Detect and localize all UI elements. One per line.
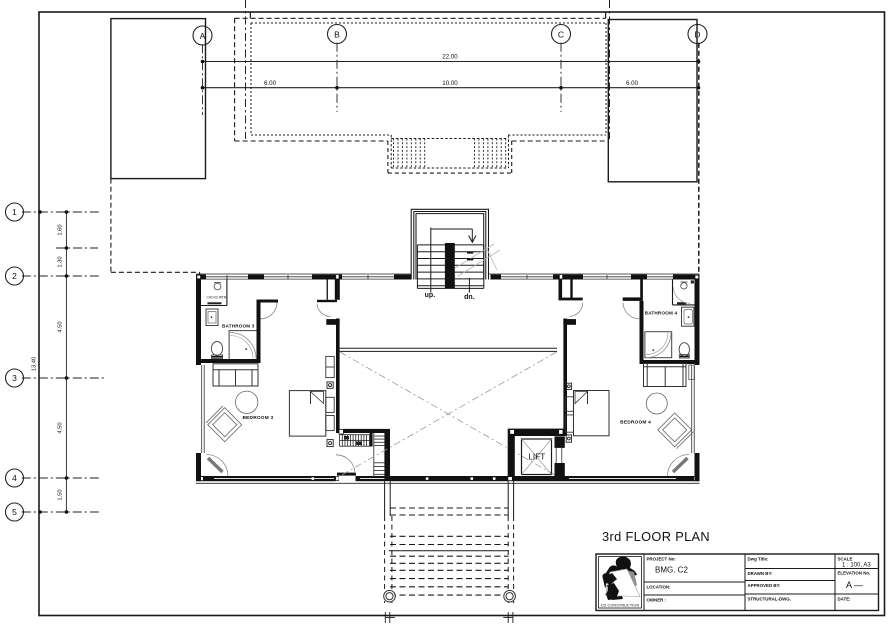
svg-text:6.00: 6.00 bbox=[264, 80, 277, 87]
svg-text:BATHROOM 4: BATHROOM 4 bbox=[645, 310, 678, 315]
svg-text:LIFT: LIFT bbox=[528, 453, 545, 462]
svg-text:A —: A — bbox=[846, 580, 863, 590]
svg-text:BATHROOM 3: BATHROOM 3 bbox=[222, 323, 255, 328]
svg-text:1: 1 bbox=[12, 207, 17, 217]
svg-text:ELEVATION No.: ELEVATION No. bbox=[838, 571, 871, 576]
svg-text:STRUCTURAL-DWG.: STRUCTURAL-DWG. bbox=[748, 597, 791, 602]
svg-text:1.60: 1.60 bbox=[58, 224, 64, 235]
svg-text:3rd FLOOR PLAN: 3rd FLOOR PLAN bbox=[602, 529, 710, 544]
svg-text:BMG. C2: BMG. C2 bbox=[655, 566, 688, 575]
svg-text:1 : 100, A3: 1 : 100, A3 bbox=[842, 563, 871, 569]
svg-text:1.30: 1.30 bbox=[58, 256, 64, 267]
svg-text:CHO.02 WTR: CHO.02 WTR bbox=[207, 296, 227, 300]
svg-text:1.50: 1.50 bbox=[58, 489, 64, 500]
svg-text:APPROVED BY:: APPROVED BY: bbox=[748, 583, 782, 588]
svg-text:3: 3 bbox=[12, 373, 17, 383]
svg-text:LOCATION:: LOCATION: bbox=[647, 585, 672, 590]
svg-text:PROJECT No:: PROJECT No: bbox=[647, 557, 677, 562]
svg-text:Dwg Title:: Dwg Title: bbox=[748, 557, 769, 562]
svg-text:4: 4 bbox=[12, 473, 17, 483]
svg-text:CD CONSTRUCTION: CD CONSTRUCTION bbox=[601, 604, 640, 608]
svg-text:13.40: 13.40 bbox=[32, 357, 38, 372]
svg-text:B: B bbox=[334, 29, 340, 39]
svg-text:BEDROOM 3: BEDROOM 3 bbox=[242, 415, 273, 421]
svg-text:DATE:: DATE: bbox=[838, 597, 852, 602]
svg-text:5: 5 bbox=[12, 507, 17, 517]
svg-text:DRAWN BY:: DRAWN BY: bbox=[748, 571, 774, 576]
svg-text:OWNER :: OWNER : bbox=[647, 598, 667, 603]
svg-text:6.00: 6.00 bbox=[626, 80, 639, 87]
svg-text:2: 2 bbox=[12, 271, 17, 281]
svg-text:SCALE: SCALE bbox=[838, 557, 853, 562]
svg-text:A: A bbox=[200, 31, 206, 41]
svg-text:4.50: 4.50 bbox=[58, 422, 64, 433]
svg-text:up.: up. bbox=[425, 292, 436, 299]
svg-text:4.50: 4.50 bbox=[58, 321, 64, 332]
svg-text:10.00: 10.00 bbox=[442, 80, 458, 87]
svg-text:C: C bbox=[558, 29, 564, 39]
svg-text:22.00: 22.00 bbox=[442, 54, 458, 61]
svg-text:dn.: dn. bbox=[464, 294, 475, 301]
svg-text:BEDROOM 4: BEDROOM 4 bbox=[620, 419, 651, 425]
